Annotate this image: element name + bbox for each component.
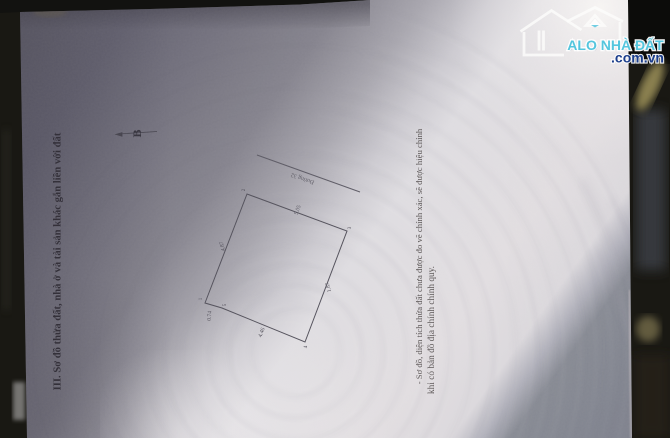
svg-text:.com.vn: .com.vn [611, 50, 664, 66]
